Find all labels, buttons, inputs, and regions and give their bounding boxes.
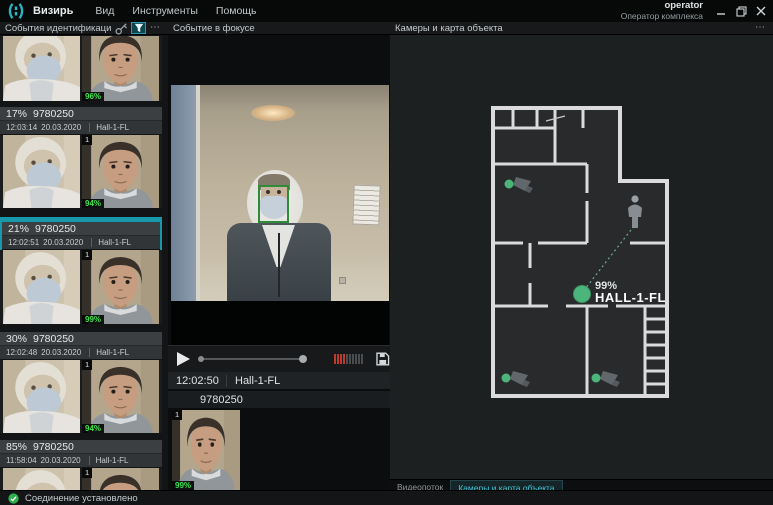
- play-button[interactable]: [177, 352, 190, 366]
- event-time: 12:03:14: [6, 123, 37, 132]
- save-button[interactable]: [376, 352, 390, 366]
- video-viewport: [171, 85, 389, 345]
- ellipsis-icon: ⋯: [755, 24, 766, 32]
- reference-index-badge: 1: [82, 360, 92, 370]
- events-panel-title: События идентификации: [5, 23, 112, 34]
- focus-reference-thumbnail[interactable]: 1 99%: [172, 410, 240, 490]
- close-button[interactable]: [753, 4, 769, 18]
- focus-panel: Событие в фокусе: [168, 22, 390, 490]
- event-person-id: 9780250: [35, 223, 76, 235]
- event-item-selected[interactable]: 21%9780250 12:02:5120.03.2020Hall-1-FL 1…: [0, 222, 162, 324]
- map-menu-button[interactable]: ⋯: [753, 22, 768, 34]
- reference-face-image: 1 94%: [82, 360, 159, 433]
- menu-item-tools[interactable]: Инструменты: [132, 5, 197, 17]
- event-meta-row: 21%9780250: [2, 222, 160, 236]
- event-score: 30%: [6, 333, 33, 345]
- close-icon: [756, 6, 766, 16]
- event-time-row: 12:02:4820.03.2020Hall-1-FL: [0, 346, 162, 359]
- event-item[interactable]: 30%9780250 12:02:4820.03.2020Hall-1-FL 1…: [0, 332, 162, 433]
- event-camera: Hall-1-FL: [96, 348, 129, 357]
- filter-icon[interactable]: [131, 22, 146, 34]
- event-meta-row: 30%9780250: [0, 332, 162, 346]
- playback-controls: [168, 345, 390, 372]
- reference-index-badge: 1: [82, 250, 92, 260]
- focus-camera: Hall-1-FL: [235, 375, 280, 387]
- event-score: 17%: [6, 108, 33, 120]
- event-camera: Hall-1-FL: [98, 238, 131, 247]
- captured-face-image: [3, 250, 80, 324]
- user-login: operator: [621, 1, 703, 11]
- application-window: Визирь Вид Инструменты Помощь operator О…: [0, 0, 773, 505]
- restore-icon: [736, 6, 747, 17]
- connection-status: Соединение установлено: [25, 493, 138, 504]
- focus-info-row: 12:02:50 Hall-1-FL: [168, 372, 390, 390]
- events-panel-header: События идентификации ⋯: [0, 22, 168, 35]
- captured-face-image: [3, 36, 80, 101]
- map-panel-title: Камеры и карта объекта: [395, 23, 751, 34]
- key-icon[interactable]: [114, 22, 129, 34]
- reference-index-badge: 1: [82, 468, 92, 478]
- seek-handle[interactable]: [299, 355, 307, 363]
- status-bar: Соединение установлено: [0, 490, 773, 505]
- app-name: Визирь: [33, 5, 73, 17]
- captured-face-image: [3, 135, 80, 208]
- reference-face-image: 1 99%: [82, 250, 159, 324]
- reference-index-badge: 1: [172, 410, 182, 420]
- match-badge: 94%: [82, 424, 104, 433]
- map-panel: Камеры и карта объекта ⋯: [390, 22, 773, 490]
- menu-item-help[interactable]: Помощь: [216, 5, 257, 17]
- event-time-row: 11:58:0420.03.2020Hall-1-FL: [0, 454, 162, 467]
- event-person-id: 9780250: [33, 333, 74, 345]
- wall-sign: [352, 185, 380, 226]
- event-camera: Hall-1-FL: [96, 456, 129, 465]
- minimize-icon: [716, 6, 726, 16]
- reference-face-image: 1: [82, 468, 159, 490]
- captured-face-image: [3, 360, 80, 433]
- event-time-row: 12:03:1420.03.2020Hall-1-FL: [0, 121, 162, 134]
- match-badge: 99%: [172, 481, 194, 490]
- reference-index-badge: 1: [82, 135, 92, 145]
- focus-panel-title: Событие в фокусе: [173, 23, 385, 34]
- event-marker[interactable]: [574, 286, 591, 303]
- focus-id-row: 9780250: [168, 391, 390, 409]
- event-time-row: 12:02:5120.03.2020Hall-1-FL: [2, 236, 160, 249]
- map-panel-header: Камеры и карта объекта ⋯: [390, 22, 773, 35]
- captured-face-image: [3, 468, 80, 490]
- hallway-door: [171, 85, 196, 301]
- match-badge: 94%: [82, 199, 104, 208]
- match-badge: 96%: [82, 92, 104, 101]
- user-info: operator Оператор комплекса: [621, 1, 703, 21]
- ellipsis-icon: ⋯: [150, 24, 161, 32]
- event-person-id: 9780250: [33, 108, 74, 120]
- focus-panel-header: Событие в фокусе: [168, 22, 390, 35]
- event-date: 20.03.2020: [43, 238, 83, 247]
- reference-face-image: 96%: [82, 36, 159, 101]
- event-date: 20.03.2020: [41, 348, 81, 357]
- map-camera-label: HALL-1-FL: [595, 290, 666, 305]
- menu-item-view[interactable]: Вид: [95, 5, 114, 17]
- event-date: 20.03.2020: [41, 123, 81, 132]
- seek-slider[interactable]: [198, 352, 360, 366]
- light-switch: [339, 277, 346, 284]
- reference-face-image: 1 94%: [82, 135, 159, 208]
- events-panel: События идентификации ⋯ 96% 17%9780250 1…: [0, 22, 168, 490]
- events-menu-button[interactable]: ⋯: [148, 22, 163, 34]
- event-score: 85%: [6, 441, 33, 453]
- user-role: Оператор комплекса: [621, 12, 703, 21]
- app-logo-icon: [5, 2, 27, 20]
- event-date: 20.03.2020: [41, 456, 81, 465]
- event-time: 12:02:51: [8, 238, 39, 247]
- focus-time: 12:02:50: [168, 375, 226, 387]
- event-person-id: 9780250: [33, 441, 74, 453]
- menu-bar: Визирь Вид Инструменты Помощь operator О…: [0, 0, 773, 22]
- event-item[interactable]: 17%9780250 12:03:1420.03.2020Hall-1-FL 1…: [0, 107, 162, 208]
- ceiling-light: [251, 105, 295, 121]
- event-meta-row: 85%9780250: [0, 440, 162, 454]
- event-time: 11:58:04: [6, 456, 37, 465]
- focus-person-id: 9780250: [168, 394, 243, 406]
- minimize-button[interactable]: [713, 4, 729, 18]
- event-item[interactable]: 85%9780250 11:58:0420.03.2020Hall-1-FL 1: [0, 440, 162, 490]
- video-frame: [171, 85, 389, 301]
- floor-plan: 99% HALL-1-FL: [488, 103, 678, 403]
- event-meta-row: 17%9780250: [0, 107, 162, 121]
- connection-ok-icon: [8, 493, 19, 504]
- event-score: 21%: [8, 223, 35, 235]
- face-detection-box: [258, 185, 289, 223]
- event-item[interactable]: 96%: [0, 36, 162, 101]
- event-camera: Hall-1-FL: [96, 123, 129, 132]
- restore-button[interactable]: [733, 4, 749, 18]
- match-badge: 99%: [82, 315, 104, 324]
- event-time: 12:02:48: [6, 348, 37, 357]
